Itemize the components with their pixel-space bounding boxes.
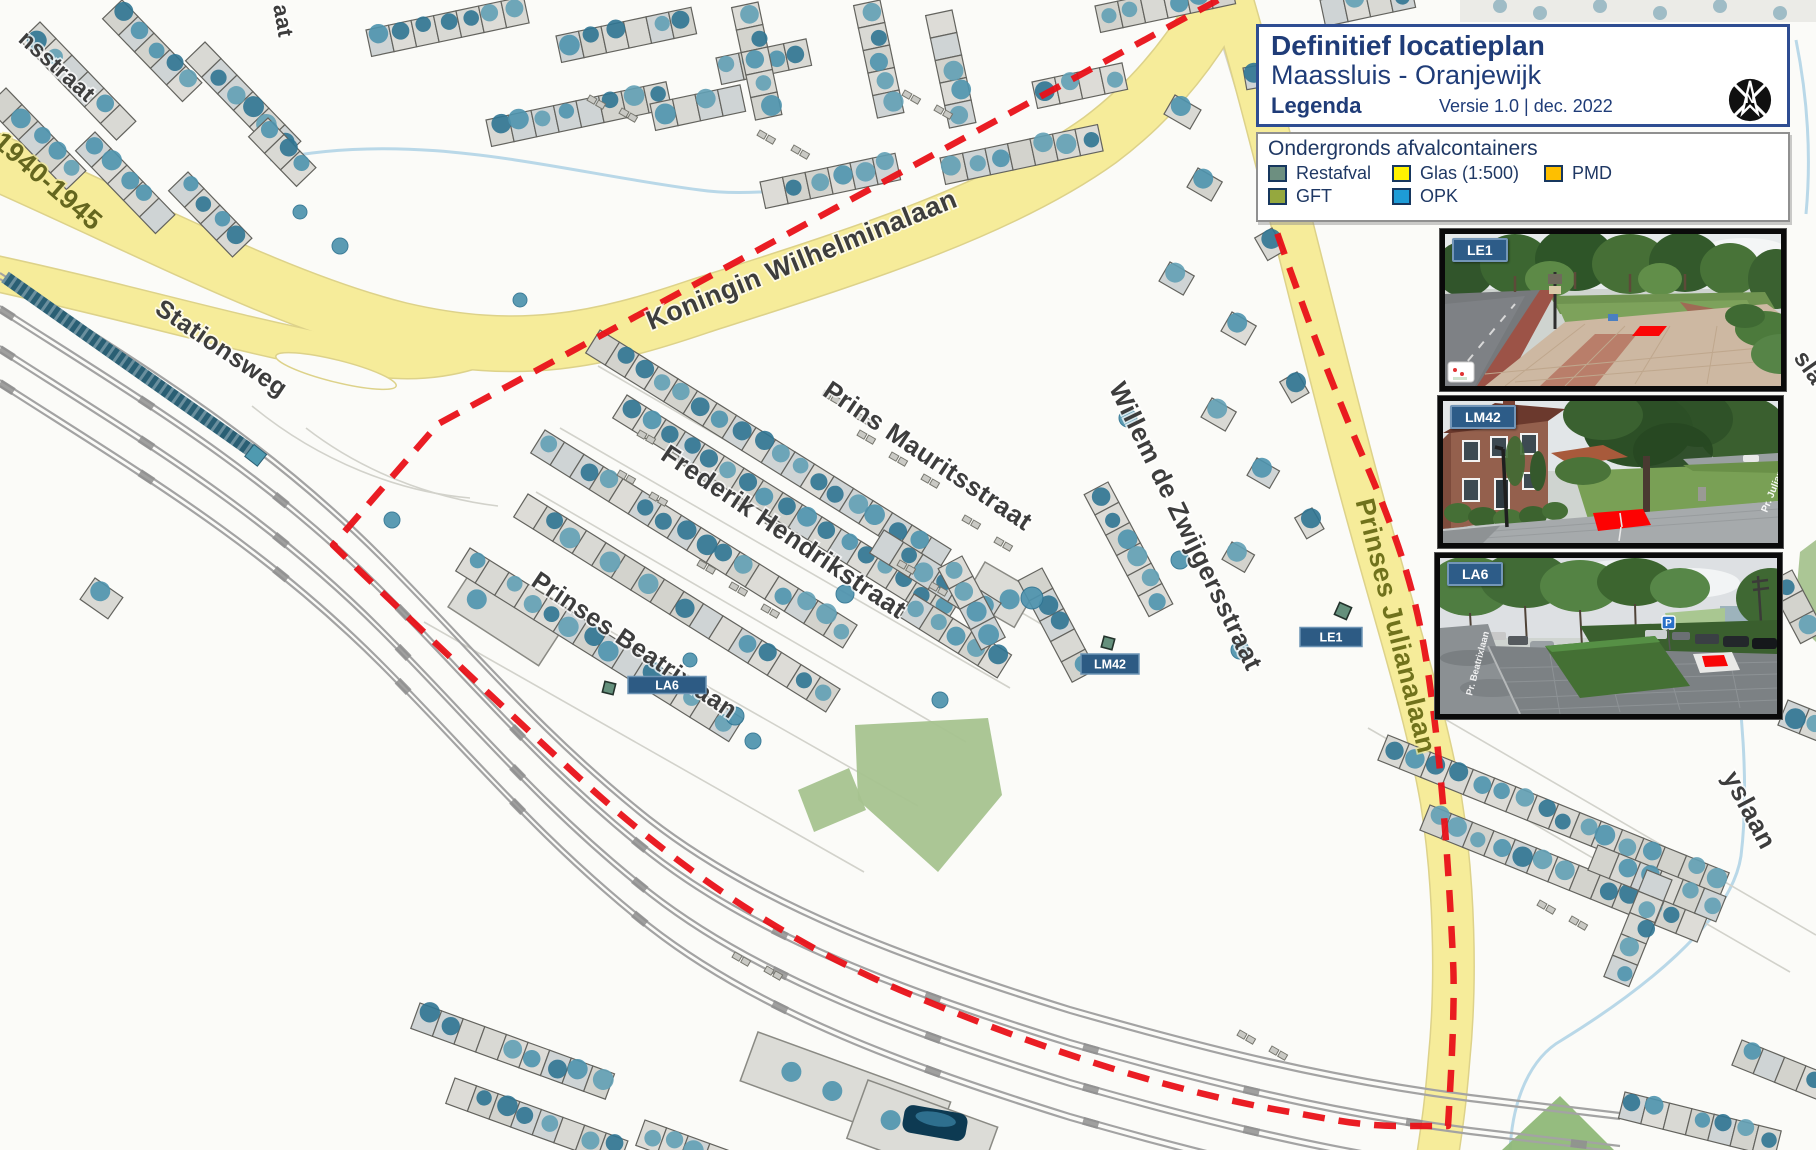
locatieplan-page: Koningin WilhelminalaanPrins Mauritsstra… bbox=[0, 0, 1816, 1150]
opk-label: OPK bbox=[1420, 186, 1458, 207]
le1-badge: LE1 bbox=[1452, 238, 1508, 262]
legend-items: RestafvalGlas (1:500)PMDGFTOPK bbox=[1268, 163, 1778, 207]
pmd-swatch bbox=[1544, 165, 1563, 182]
le1-street-sign bbox=[1608, 314, 1618, 321]
photo-inset-la6: P Pr. Beatrixlaan LA6 bbox=[1435, 553, 1782, 719]
la6-badge: LA6 bbox=[1447, 562, 1503, 586]
legend-item-opk: OPK bbox=[1392, 186, 1544, 207]
map-edge-fade bbox=[1460, 0, 1816, 22]
lm42-badge: LM42 bbox=[1450, 405, 1516, 429]
glas-label: Glas (1:500) bbox=[1420, 163, 1519, 184]
restafval-container-marker bbox=[1101, 636, 1114, 649]
legend-item-glas: Glas (1:500) bbox=[1392, 163, 1544, 184]
page-subtitle: Maassluis - Oranjewijk bbox=[1271, 62, 1787, 89]
gft-label: GFT bbox=[1296, 186, 1332, 207]
map-badge-label: LA6 bbox=[655, 679, 679, 693]
legend-heading-label: Legenda bbox=[1271, 93, 1361, 119]
lm42-tree-trunk bbox=[1643, 456, 1650, 516]
la6-location-marker bbox=[1693, 652, 1740, 673]
photo-inset-lm42: Pr. Julianalaan LM42 bbox=[1438, 396, 1783, 548]
legend-title: Ondergronds afvalcontainers bbox=[1268, 137, 1778, 161]
opk-swatch bbox=[1392, 188, 1411, 205]
legend-item-restafval: Restafval bbox=[1268, 163, 1392, 184]
le1-minimap bbox=[1448, 362, 1474, 382]
legend-item-pmd: PMD bbox=[1544, 163, 1778, 184]
title-box: Definitief locatieplan Maassluis - Oranj… bbox=[1256, 24, 1790, 127]
version-text: Versie 1.0 | dec. 2022 bbox=[1439, 96, 1613, 117]
photo-inset-le1: LE1 bbox=[1440, 229, 1786, 391]
glas-swatch bbox=[1392, 165, 1411, 182]
svg-text:N: N bbox=[1745, 91, 1755, 106]
restafval-swatch bbox=[1268, 165, 1287, 182]
legend-item-gft: GFT bbox=[1268, 186, 1392, 207]
pmd-label: PMD bbox=[1572, 163, 1612, 184]
north-compass-icon: N bbox=[1727, 77, 1773, 123]
gft-swatch bbox=[1268, 188, 1287, 205]
map-badge-label: LM42 bbox=[1094, 658, 1126, 672]
page-title: Definitief locatieplan bbox=[1271, 32, 1787, 61]
restafval-container-marker bbox=[602, 681, 615, 694]
map-badge-label: LE1 bbox=[1320, 631, 1343, 645]
svg-text:P: P bbox=[1665, 618, 1672, 629]
restafval-label: Restafval bbox=[1296, 163, 1371, 184]
legend-box: Ondergronds afvalcontainers RestafvalGla… bbox=[1256, 132, 1790, 222]
